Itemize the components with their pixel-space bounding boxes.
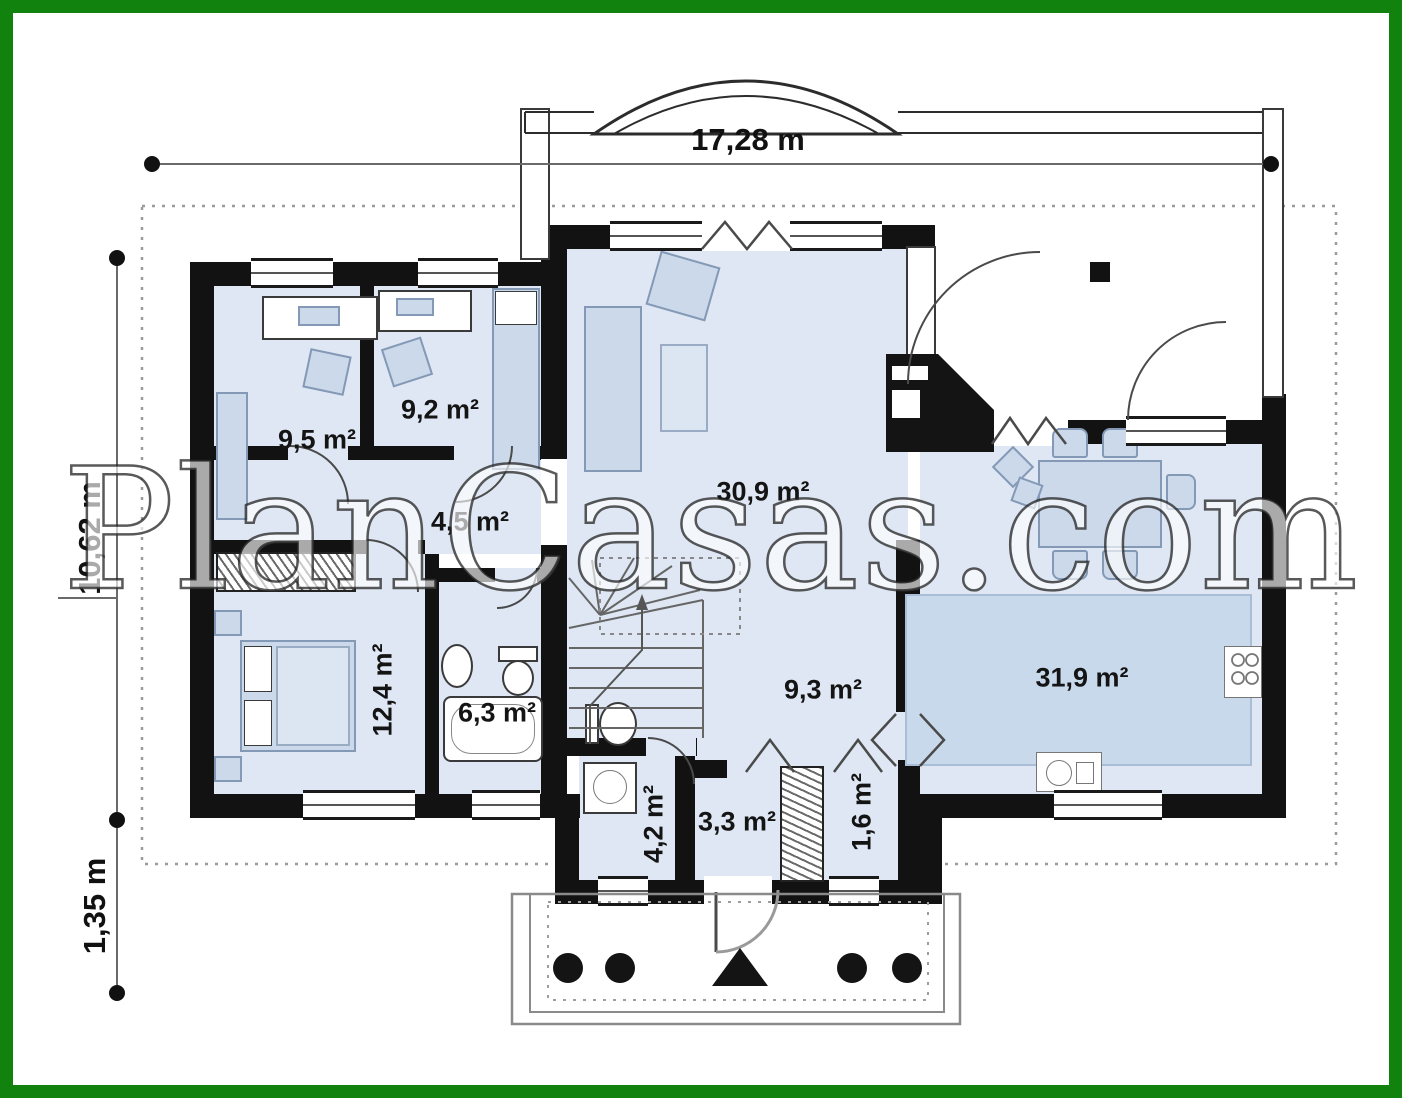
area-label-vestibule: 3,3 m² (698, 807, 776, 838)
area-label-hall: 9,3 m² (784, 675, 862, 706)
labels: 17,28 m 10,62 m 1,35 m 9,5 m² 9,2 m² 4,5… (0, 0, 1402, 1098)
area-label-hallway: 4,5 m² (431, 507, 509, 538)
dim-main-depth: 10,62 m (72, 481, 108, 595)
dim-total-width: 17,28 m (691, 122, 805, 158)
area-label-bedroom-a: 9,5 m² (278, 425, 356, 456)
area-label-kitchen: 31,9 m² (1035, 663, 1128, 694)
area-label-bedroom-b: 9,2 m² (401, 395, 479, 426)
floor-plan-page: 17,28 m 10,62 m 1,35 m 9,5 m² 9,2 m² 4,5… (0, 0, 1402, 1098)
area-label-closet: 1,6 m² (847, 773, 878, 851)
dim-porch-depth: 1,35 m (77, 858, 113, 955)
area-label-bathroom: 6,3 m² (458, 698, 536, 729)
area-label-bedroom-c: 12,4 m² (368, 643, 399, 736)
area-label-living-room: 30,9 m² (716, 477, 809, 508)
area-label-wc: 4,2 m² (639, 785, 670, 863)
